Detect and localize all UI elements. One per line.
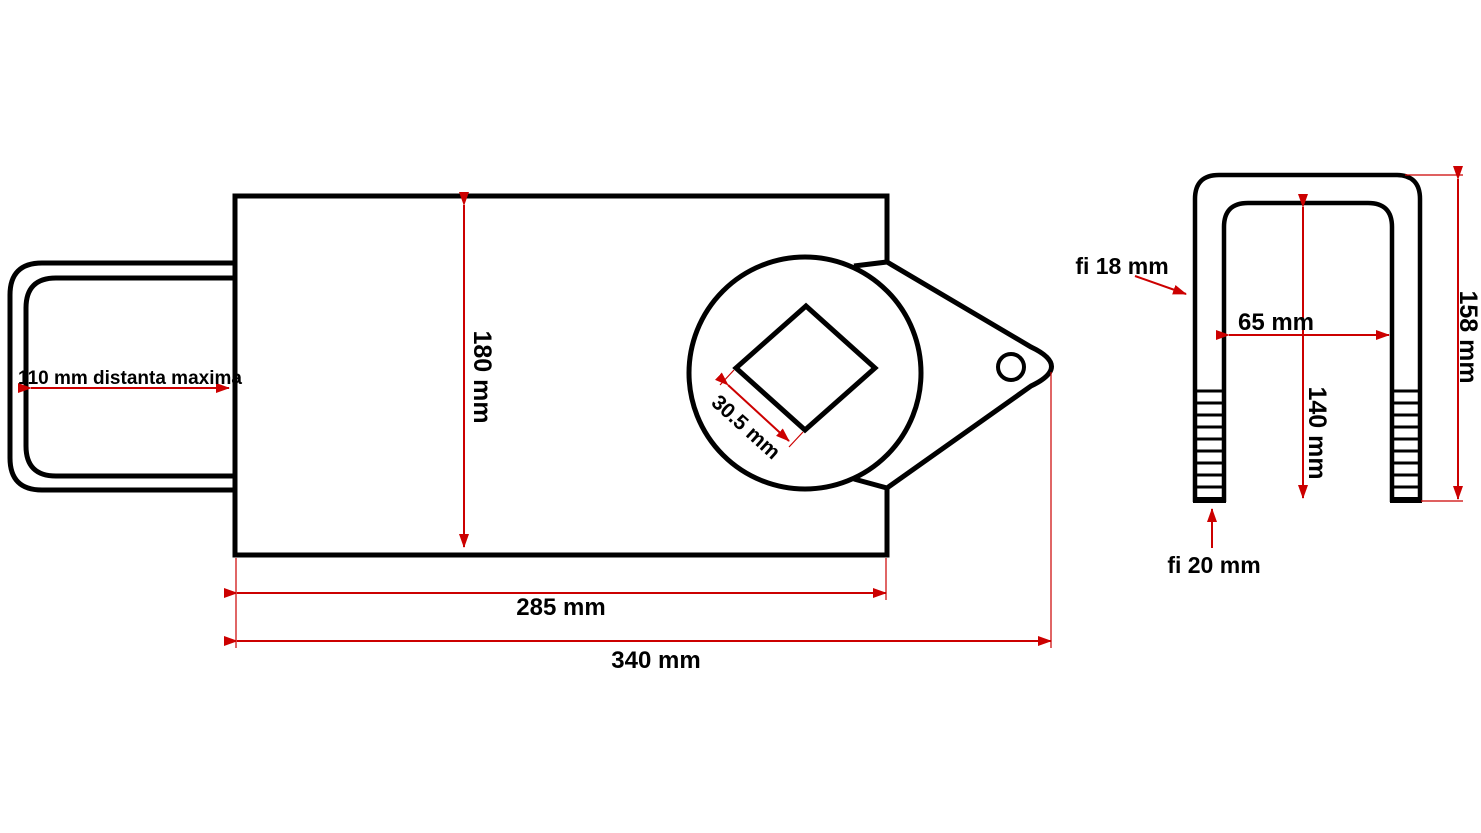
label-65mm: 65 mm — [1238, 309, 1314, 336]
technical-drawing-canvas: 110 mm distanta maxima 180 mm 30.5 mm 28… — [0, 0, 1481, 833]
label-fi-18mm: fi 18 mm — [1075, 253, 1168, 279]
label-180mm: 180 mm — [468, 330, 496, 423]
left-leg-thread-hatching — [1195, 391, 1224, 487]
label-285mm: 285 mm — [516, 594, 605, 621]
drawing-svg: 110 mm distanta maxima 180 mm 30.5 mm 28… — [0, 0, 1481, 833]
extension-lines — [236, 175, 1463, 648]
label-340mm: 340 mm — [611, 647, 700, 674]
coupling-ball-housing-circle — [689, 257, 921, 489]
label-140mm: 140 mm — [1303, 386, 1331, 479]
padlock-hole-circle — [998, 354, 1024, 380]
ext-square-lower — [789, 432, 803, 447]
right-leg-thread-hatching — [1392, 391, 1421, 487]
outline-layer — [10, 175, 1422, 555]
label-110mm: 110 mm distanta maxima — [18, 368, 242, 389]
label-158mm: 158 mm — [1454, 290, 1481, 383]
lock-body-outline — [235, 196, 887, 555]
label-fi-20mm: fi 20 mm — [1167, 552, 1260, 578]
ext-square-upper — [720, 370, 734, 385]
